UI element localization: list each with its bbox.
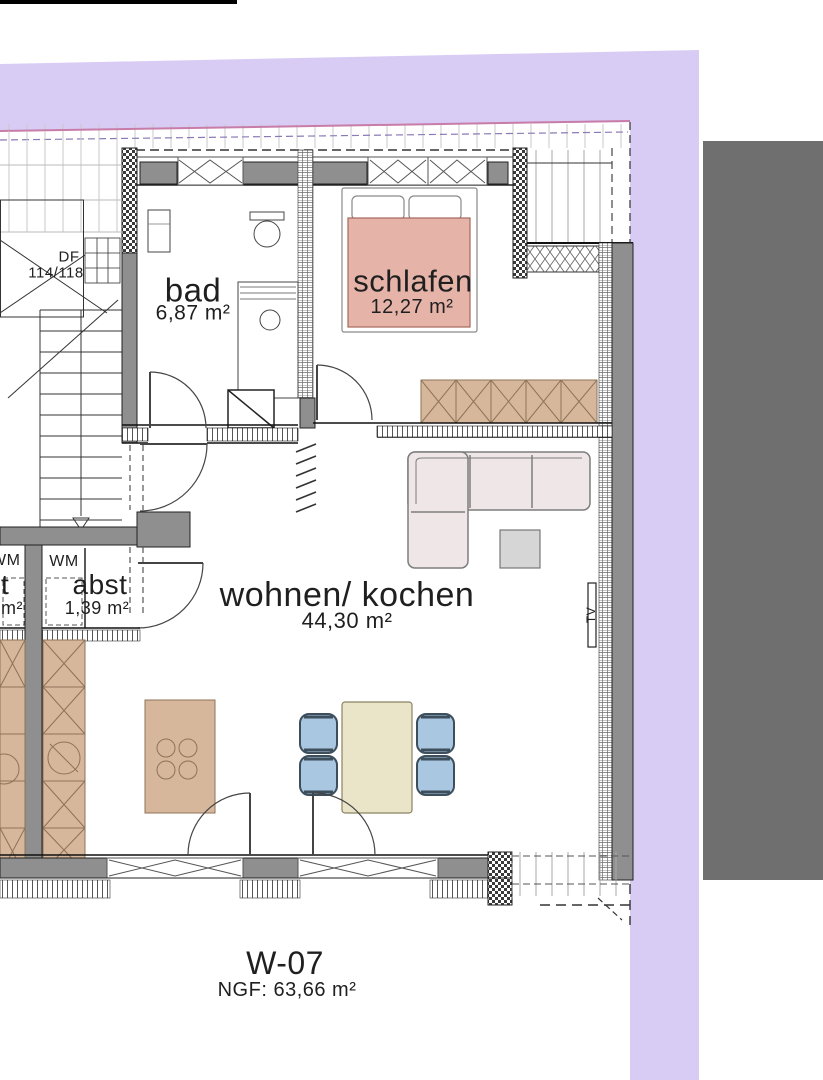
- unit-code: W-07: [246, 947, 324, 979]
- room-label-abst: abst: [73, 571, 128, 599]
- unit-area: NGF: 63,66 m²: [218, 980, 357, 1000]
- shelf-symbol: [85, 238, 120, 283]
- chair: [417, 714, 454, 753]
- cutoff-area-label: m²: [1, 599, 23, 617]
- washing-machine-label: WM: [49, 554, 78, 570]
- wall-hall-south-a: [0, 527, 137, 545]
- room-label-wohnen-kochen: wohnen/ kochen: [220, 578, 475, 612]
- chair: [300, 756, 337, 795]
- washing-machine-label-left: WM: [0, 553, 20, 569]
- pilaster-right: [513, 148, 527, 278]
- floorplan-page: bad 6,87 m² schlafen 12,27 m² abst 1,39 …: [0, 0, 823, 1080]
- pillow: [409, 196, 461, 220]
- washbasin: [148, 210, 170, 252]
- right-wall: [599, 243, 633, 880]
- dining-table: [342, 702, 412, 813]
- neighbor-counter: [0, 640, 25, 875]
- kitchen-counter: [43, 640, 85, 872]
- wall-stair-bad: [122, 253, 137, 443]
- duct-shaft: [228, 390, 274, 428]
- room-area-abst: 1,39 m²: [65, 599, 130, 617]
- kitchen-island: [145, 700, 215, 813]
- floor-plan-drawing: [0, 0, 823, 1080]
- wall-bad-schlafen: [298, 150, 313, 398]
- roof-window-north-2: [368, 157, 487, 185]
- top-border-line: [0, 0, 237, 4]
- neighbor-building-panel: [703, 141, 823, 880]
- tv-label: TV: [585, 600, 597, 630]
- side-table: [500, 530, 540, 568]
- roof-window-size-label: 114/118: [28, 266, 84, 281]
- shower: [238, 282, 298, 398]
- wall-hall-south-b: [137, 512, 190, 547]
- terrace-window-1: [107, 858, 243, 878]
- pillow: [352, 196, 404, 220]
- wardrobe: [421, 380, 597, 423]
- roof-window-north-1: [178, 157, 243, 185]
- terrace-window-2: [298, 858, 438, 878]
- chair: [417, 756, 454, 795]
- room-label-schlafen: schlafen: [353, 266, 472, 297]
- room-area-bad: 6,87 m²: [156, 303, 231, 324]
- room-area-schlafen: 12,27 m²: [371, 297, 454, 317]
- wall-left-party: [25, 545, 42, 877]
- insulation-band: [527, 246, 599, 272]
- roof-window-label: DF: [59, 250, 80, 265]
- room-area-wohnen-kochen: 44,30 m²: [302, 610, 393, 632]
- pilaster-left: [122, 148, 137, 253]
- chair: [300, 714, 337, 753]
- cutoff-room-label: t: [1, 571, 9, 599]
